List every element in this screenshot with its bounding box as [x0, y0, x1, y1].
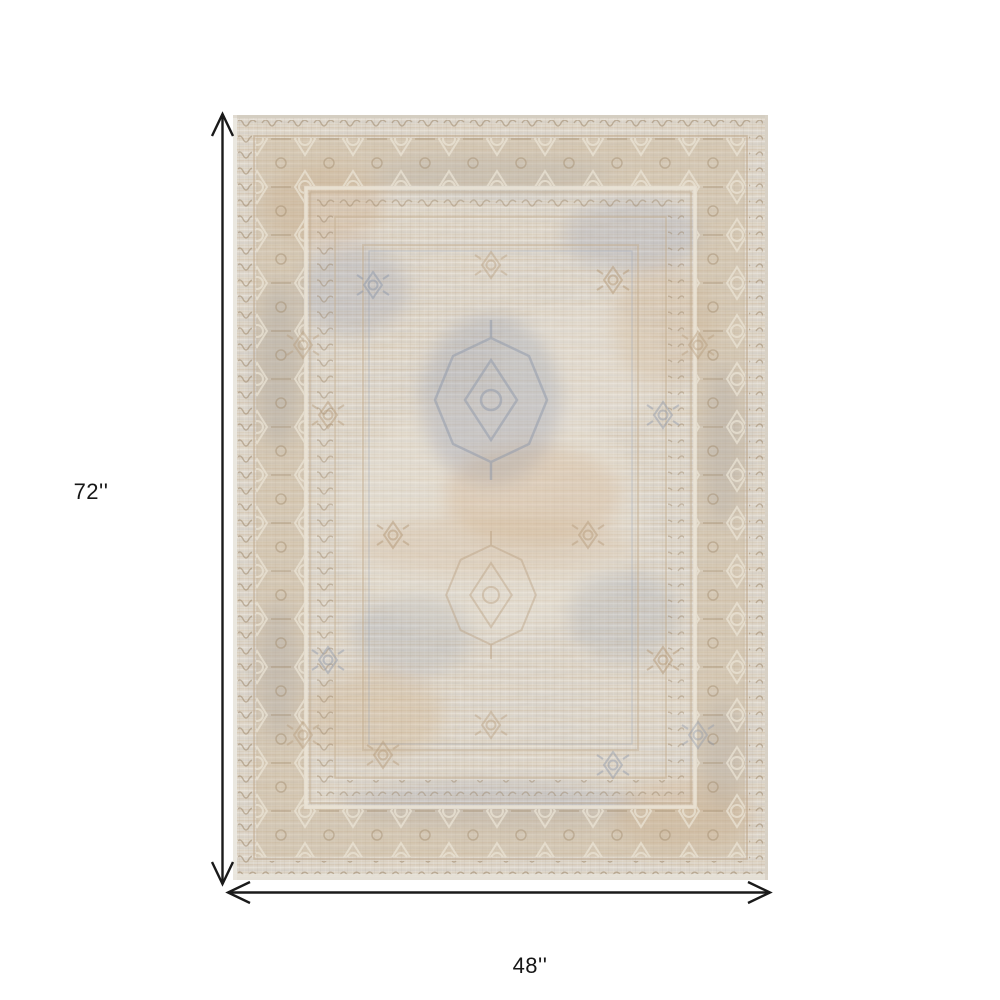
height-dimension-arrow [204, 108, 240, 898]
rug-image [233, 115, 768, 880]
product-dimension-diagram: 72'' 48'' [0, 0, 1000, 1000]
width-dimension-label: 48'' [497, 953, 563, 979]
width-dimension-arrow [221, 874, 777, 910]
height-dimension-label: 72'' [58, 479, 124, 505]
rug-artwork [233, 115, 768, 880]
